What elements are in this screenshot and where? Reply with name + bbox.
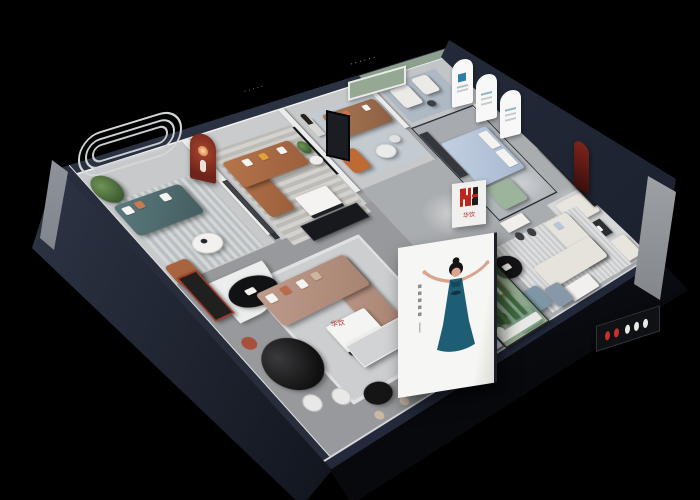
- niche-vase: [200, 159, 206, 172]
- white-bottle: [625, 324, 630, 335]
- red-bottle: [614, 328, 619, 339]
- wall-mirror: [326, 110, 350, 162]
- brand-logo-panel: 华饮: [452, 180, 486, 228]
- arch-logo-mark: [458, 73, 466, 83]
- brand-display-shelf: [596, 305, 660, 352]
- brand-logo-mark-icon: [457, 183, 481, 210]
- poster-vertical-caption: [418, 284, 422, 333]
- white-bottle: [643, 318, 648, 329]
- poster-lightbox: [398, 232, 497, 398]
- wine-arch-niche: [574, 138, 589, 195]
- showroom-floor: [60, 46, 660, 470]
- red-arch-niche: [190, 131, 216, 184]
- arched-display-panel: [500, 88, 521, 139]
- poster-woman-illustration: [398, 233, 494, 398]
- wall-dot-text: ·····: [244, 82, 265, 96]
- brand-logo-text: 华饮: [452, 211, 486, 221]
- arch-caption-lines: [505, 107, 516, 112]
- arch-caption-lines: [481, 91, 492, 96]
- arched-display-panel: [452, 57, 473, 108]
- red-bottle: [605, 330, 610, 341]
- arched-display-panel: [476, 72, 497, 123]
- arch-caption-lines: [457, 84, 468, 89]
- wall-dot-text: ······: [350, 52, 377, 69]
- white-bottle: [634, 321, 639, 332]
- showroom-scene: ······ ····· 华饮 华饮: [0, 0, 700, 500]
- niche-lamp-glow: [198, 145, 208, 157]
